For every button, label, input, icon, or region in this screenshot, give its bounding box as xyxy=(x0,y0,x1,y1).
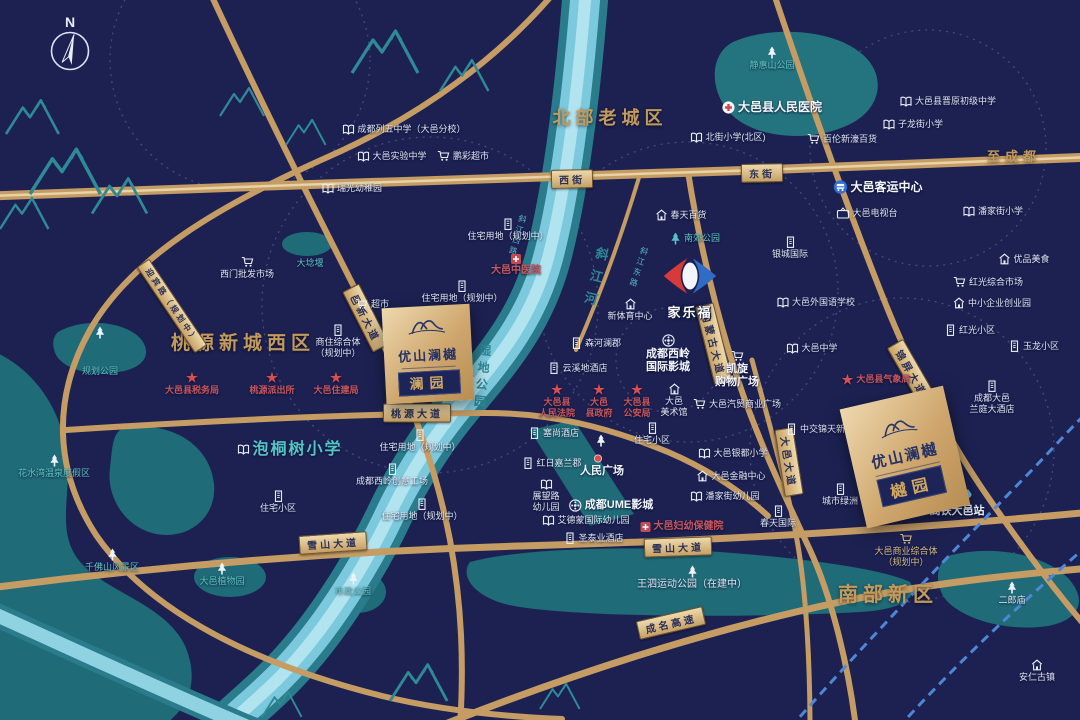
carrefour-label: 家乐福 xyxy=(667,302,712,321)
home-icon xyxy=(655,209,667,221)
home-poi: 中小企业创业园 xyxy=(953,297,1031,309)
property-card: 优山澜樾澜园 xyxy=(382,304,475,404)
bld-poi: 住宅用地（规划中） xyxy=(379,429,460,453)
property-name: 优山澜樾 xyxy=(398,343,459,365)
bld-poi: 玉龙小区 xyxy=(1009,340,1059,352)
bld-icon xyxy=(386,463,397,475)
book-icon xyxy=(963,206,975,217)
poi-label: 大邑汽贸商业广场 xyxy=(709,399,781,410)
film-icon xyxy=(662,334,675,347)
treew-poi: 千佛山风景区 xyxy=(85,548,139,573)
film-icon xyxy=(569,499,582,512)
bld-icon xyxy=(571,337,582,349)
book-poi: 大邑外国语学校 xyxy=(777,297,855,308)
poi-label: 春天百货 xyxy=(670,210,706,221)
poi-label: 二郎庙 xyxy=(998,595,1025,606)
bld-icon xyxy=(502,218,513,230)
book-icon xyxy=(542,515,554,526)
home-poi: 大邑 美术馆 xyxy=(660,383,687,418)
bld-poi: 住宅用地（规划中） xyxy=(381,498,462,522)
treew-icon xyxy=(596,434,607,447)
poi-label: 大邑银都小学 xyxy=(713,448,767,459)
roads xyxy=(0,0,1080,720)
poi-label: 安仁古镇 xyxy=(1019,672,1055,683)
poi-label: 人民广场 xyxy=(580,465,624,478)
bld-poi: 塞尚酒店 xyxy=(529,427,579,439)
poi-label: 森河澜郡 xyxy=(585,338,621,349)
poi-label: 大邑妇幼保健院 xyxy=(654,521,724,533)
road-label: 东街 xyxy=(741,163,783,183)
home-icon xyxy=(998,253,1010,265)
book-poi: 潘家街小学 xyxy=(963,206,1023,217)
poi-label: 大邑实验中学 xyxy=(372,151,426,162)
cartg-icon xyxy=(899,533,912,545)
bld-icon xyxy=(786,423,797,435)
bld-poi: 住宅用地（规划中） xyxy=(421,280,502,304)
tv-icon xyxy=(836,207,849,219)
property-logo-icon xyxy=(876,410,921,447)
location-map: N 家乐福 成都列五中学（大邑分校）大邑实验中学瑞光幼稚园鹏彩超市静惠山公园大邑… xyxy=(0,0,1080,720)
bld-icon xyxy=(986,380,997,392)
poi-label: 塞尚酒店 xyxy=(543,428,579,439)
bld-poi: 春天国际 xyxy=(760,505,796,529)
poi-label: 潘家街幼儿园 xyxy=(705,491,759,502)
bus-icon xyxy=(833,180,847,194)
star-poi: ★大邑县税务局 xyxy=(165,371,219,396)
bld-poi: 住宅小区 xyxy=(260,490,296,514)
bld-icon xyxy=(272,490,283,502)
book-icon xyxy=(883,119,895,130)
cart-icon xyxy=(807,133,820,145)
bld-icon xyxy=(529,427,540,439)
star-poi: ★桃源派出所 xyxy=(249,371,294,396)
treew-poi xyxy=(596,434,607,447)
poi-label: 成都大邑 兰庭大酒店 xyxy=(969,393,1014,415)
treet-poi: 南郊公园 xyxy=(670,232,720,245)
poi-label: 成都UME影城 xyxy=(585,499,653,512)
bld-poi: 商住综合体 （规划中） xyxy=(315,324,360,359)
poi-label: 银城国际 xyxy=(772,249,808,260)
tv-poi: 大邑电视台 xyxy=(836,207,897,219)
book-poi: 泡桐树小学 xyxy=(237,440,342,459)
bld-icon xyxy=(414,429,425,441)
bld-icon xyxy=(548,362,559,374)
poi-label: 玉龙小区 xyxy=(1023,341,1059,352)
poi-label: 红光小区 xyxy=(959,325,995,336)
bld-icon xyxy=(784,236,795,248)
bld-icon xyxy=(456,280,467,292)
crossr-icon xyxy=(641,522,651,532)
district-label: 至成都 xyxy=(987,146,1041,165)
bld-poi: 圣泰业酒店 xyxy=(564,532,623,544)
poi-label: 成都西岭创意工场 xyxy=(356,476,428,487)
poi-label: 住宅用地（规划中） xyxy=(421,293,502,304)
bus-poi: 大邑客运中心 xyxy=(833,180,922,194)
map-artwork xyxy=(0,0,1080,720)
cartg-poi: 大邑商业综合体 （规划中） xyxy=(874,533,937,568)
book-poi: 大邑中学 xyxy=(786,343,837,354)
bld-icon xyxy=(1009,340,1020,352)
poi-label: 大邑中医院 xyxy=(491,265,541,277)
treew-icon xyxy=(687,565,698,578)
poi-label: 大邑 美术馆 xyxy=(660,396,687,418)
book-icon xyxy=(786,343,798,354)
star-icon: ★ xyxy=(330,371,342,384)
poi-label: 红日嘉兰郡 xyxy=(536,458,581,469)
book-poi: 瑞光幼稚园 xyxy=(322,183,382,194)
poi-label: 大邑电视台 xyxy=(852,208,897,219)
treew-icon xyxy=(347,572,358,585)
home-poi: 大邑金融中心 xyxy=(696,470,765,482)
star-icon: ★ xyxy=(842,373,854,386)
cart-icon xyxy=(437,150,450,162)
bld-icon xyxy=(834,483,845,495)
treew-icon xyxy=(106,548,117,561)
poi-label: 成都西岭 国际影城 xyxy=(646,348,690,374)
treew-poi: 大邑植物园 xyxy=(199,562,244,587)
dot-icon xyxy=(594,454,603,463)
bld-poi: 住宅用地（规划中） xyxy=(467,218,548,242)
treew-poi: 市政公园 xyxy=(335,572,371,597)
poi-label: 大邑商业综合体 （规划中） xyxy=(874,546,937,568)
bld-poi: 成都大邑 兰庭大酒店 xyxy=(969,380,1014,415)
bld-icon xyxy=(332,324,343,336)
poi-label: 艾德蒙国际幼儿园 xyxy=(557,515,629,526)
map-label: 大埝堰 xyxy=(296,258,323,269)
bld-icon xyxy=(646,422,657,434)
poi-label: 春天国际 xyxy=(760,518,796,529)
poi-label: 新体育中心 xyxy=(607,311,652,322)
treew-icon xyxy=(48,454,59,467)
home-icon xyxy=(1031,659,1043,671)
book-icon xyxy=(690,491,702,502)
treew-icon xyxy=(95,326,106,339)
poi-label: 大邑中学 xyxy=(801,343,837,354)
star-poi: ★大邑县气象局 xyxy=(842,373,911,386)
district-label: 北部老城区 xyxy=(553,104,668,130)
poi-label: 泡桐树小学 xyxy=(252,440,342,459)
home-icon xyxy=(668,383,680,395)
poi-label: 大邑县人民医院 xyxy=(738,100,822,114)
home-icon xyxy=(953,297,965,309)
poi-label: 大邑 县政府 xyxy=(585,397,612,419)
road-label: 西街 xyxy=(551,169,593,189)
book-icon xyxy=(357,151,369,162)
poi-label: 中小企业创业园 xyxy=(968,298,1031,309)
star-icon: ★ xyxy=(266,371,278,384)
bld-icon xyxy=(564,532,575,544)
poi-label: 花水湾温泉度假区 xyxy=(18,468,90,479)
cart-poi: 鹏彩超市 xyxy=(437,150,489,162)
compass: N xyxy=(50,14,90,76)
book-poi: 艾德蒙国际幼儿园 xyxy=(542,515,629,526)
poi-label: 大邑住建局 xyxy=(313,385,358,396)
property-badge: 澜园 xyxy=(398,369,461,396)
poi-label: 红光综合市场 xyxy=(969,277,1023,288)
book-poi: 展望路 幼儿园 xyxy=(532,479,559,513)
book-poi: 成都列五中学（大邑分校） xyxy=(342,124,465,135)
cross-icon xyxy=(722,101,735,114)
home-poi: 优品美食 xyxy=(998,253,1049,265)
bld-icon xyxy=(945,324,956,336)
book-icon xyxy=(237,444,249,455)
home-poi: 安仁古镇 xyxy=(1019,659,1055,683)
cart-icon xyxy=(953,276,966,288)
divider xyxy=(401,366,456,370)
book-poi: 潘家街幼儿园 xyxy=(690,491,759,502)
poi-label: 南郊公园 xyxy=(684,233,720,244)
cart-icon xyxy=(693,398,706,410)
poi-label: 北街小学(北区) xyxy=(706,132,766,143)
cart-icon xyxy=(240,256,253,268)
cart-poi: 西门批发市场 xyxy=(220,256,274,280)
treew-poi: 二郎庙 xyxy=(998,581,1025,606)
poi-label: 百伦新濠百货 xyxy=(823,134,877,145)
home-poi: 春天百货 xyxy=(655,209,706,221)
poi-label: 住宅用地（规划中） xyxy=(381,511,462,522)
bld-poi: 城市绿洲 xyxy=(822,483,858,507)
bld-poi: 森河澜郡 xyxy=(571,337,621,349)
treew-icon xyxy=(1006,581,1017,594)
poi-label: 圣泰业酒店 xyxy=(578,533,623,544)
poi-label: 住宅用地（规划中） xyxy=(379,442,460,453)
poi-label: 大邑县税务局 xyxy=(165,385,219,396)
property-badge: 樾园 xyxy=(876,465,947,507)
poi-label: 大邑外国语学校 xyxy=(792,297,855,308)
star-poi: ★大邑县 公安局 xyxy=(623,383,650,419)
treew-icon xyxy=(216,562,227,575)
district-label: 南部新区 xyxy=(838,578,938,607)
book-icon xyxy=(540,479,552,490)
book-poi: 北街小学(北区) xyxy=(691,132,766,143)
poi-label: 大邑县气象局 xyxy=(856,374,910,385)
cart-icon xyxy=(355,298,368,310)
poi-label: 王泗运动公园（在建中） xyxy=(637,579,747,591)
crossr-icon xyxy=(511,254,521,264)
film-poi: 成都西岭 国际影城 xyxy=(646,334,690,374)
book-icon xyxy=(698,448,710,459)
bld-poi: 红日嘉兰郡 xyxy=(522,457,581,469)
compass-icon xyxy=(50,31,90,76)
bld-icon xyxy=(416,498,427,510)
treew-poi: 静惠山公园 xyxy=(749,46,794,71)
poi-label: 住宅用地（规划中） xyxy=(467,231,548,242)
poi-label: 云溪地酒店 xyxy=(562,363,607,374)
treew-poi: 花水湾温泉度假区 xyxy=(18,454,90,479)
poi-label: 静惠山公园 xyxy=(749,60,794,71)
poi-label: 市政公园 xyxy=(335,586,371,597)
bld-poi: 住宅小区 xyxy=(634,422,670,446)
book-icon xyxy=(342,124,354,135)
carrefour-landmark: 家乐福 xyxy=(663,256,717,321)
cart-poi: 大邑汽贸商业广场 xyxy=(693,398,781,410)
book-icon xyxy=(691,132,703,143)
bld-poi: 红光小区 xyxy=(945,324,995,336)
bld-poi: 银城国际 xyxy=(772,236,808,260)
treew-poi: 王泗运动公园（在建中） xyxy=(637,565,747,591)
poi-label: 优品美食 xyxy=(1013,254,1049,265)
road-label: 雪山大道 xyxy=(644,536,713,557)
star-poi: ★大邑住建局 xyxy=(313,371,358,396)
poi-label: 子龙街小学 xyxy=(898,119,943,130)
book-poi: 大邑县晋原初级中学 xyxy=(900,96,996,107)
cart-poi: 百伦新濠百货 xyxy=(807,133,877,145)
home-poi: 新体育中心 xyxy=(607,298,652,322)
poi-label: 大埝堰 xyxy=(296,258,323,269)
poi-label: 大邑县晋原初级中学 xyxy=(915,96,996,107)
cart-poi: 凯旋 购物广场 xyxy=(715,350,759,389)
cart-icon xyxy=(731,350,744,362)
crossr-poi: 大邑妇幼保健院 xyxy=(641,521,724,533)
bld-icon xyxy=(522,457,533,469)
poi-label: 大邑金融中心 xyxy=(711,471,765,482)
poi-label: 桃源派出所 xyxy=(249,385,294,396)
cross-poi: 大邑县人民医院 xyxy=(722,100,822,114)
book-icon xyxy=(777,297,789,308)
star-icon: ★ xyxy=(593,383,605,396)
book-poi: 大邑实验中学 xyxy=(357,151,426,162)
home-icon xyxy=(696,470,708,482)
book-icon xyxy=(900,96,912,107)
dot-poi xyxy=(594,454,603,463)
poi-label: 潘家街小学 xyxy=(978,206,1023,217)
star-icon: ★ xyxy=(186,371,198,384)
poi-label: 商住综合体 （规划中） xyxy=(315,337,360,359)
home-icon xyxy=(624,298,636,310)
cart-poi: 红光综合市场 xyxy=(953,276,1023,288)
film-poi: 成都UME影城 xyxy=(569,499,653,512)
treew-poi xyxy=(95,326,106,339)
map-label: 人民广场 xyxy=(580,465,624,478)
bld-icon xyxy=(772,505,783,517)
poi-label: 大邑县 人民法院 xyxy=(539,397,575,419)
poi-label: 城市绿洲 xyxy=(822,496,858,507)
road-label: 桃源大道 xyxy=(383,404,451,423)
treet-icon xyxy=(670,232,681,245)
star-icon: ★ xyxy=(631,383,643,396)
poi-label: 凯旋 购物广场 xyxy=(715,363,759,389)
carrefour-icon xyxy=(663,256,717,301)
map-label: 规划公园 xyxy=(82,366,118,377)
compass-north-label: N xyxy=(50,14,90,30)
poi-label: 规划公园 xyxy=(82,366,118,377)
book-poi: 大邑银都小学 xyxy=(698,448,767,459)
bld-poi: 成都西岭创意工场 xyxy=(356,463,428,487)
poi-label: 千佛山风景区 xyxy=(85,562,139,573)
book-poi: 子龙街小学 xyxy=(883,119,943,130)
poi-label: 瑞光幼稚园 xyxy=(337,183,382,194)
bld-poi: 云溪地酒店 xyxy=(548,362,607,374)
crossr-poi: 大邑中医院 xyxy=(491,254,541,277)
star-poi: ★大邑 县政府 xyxy=(585,383,612,419)
poi-label: 展望路 幼儿园 xyxy=(532,491,559,513)
treew-icon xyxy=(766,46,777,59)
poi-label: 大邑客运中心 xyxy=(850,180,922,194)
star-icon: ★ xyxy=(551,383,563,396)
poi-label: 大邑县 公安局 xyxy=(623,397,650,419)
poi-label: 鹏彩超市 xyxy=(453,151,489,162)
poi-label: 住宅小区 xyxy=(260,503,296,514)
poi-label: 西门批发市场 xyxy=(220,269,274,280)
star-poi: ★大邑县 人民法院 xyxy=(539,383,575,419)
poi-label: 大邑植物园 xyxy=(199,576,244,587)
poi-label: 住宅小区 xyxy=(634,435,670,446)
book-icon xyxy=(322,183,334,194)
poi-label: 成都列五中学（大邑分校） xyxy=(357,124,465,135)
property-logo-icon xyxy=(406,312,447,343)
